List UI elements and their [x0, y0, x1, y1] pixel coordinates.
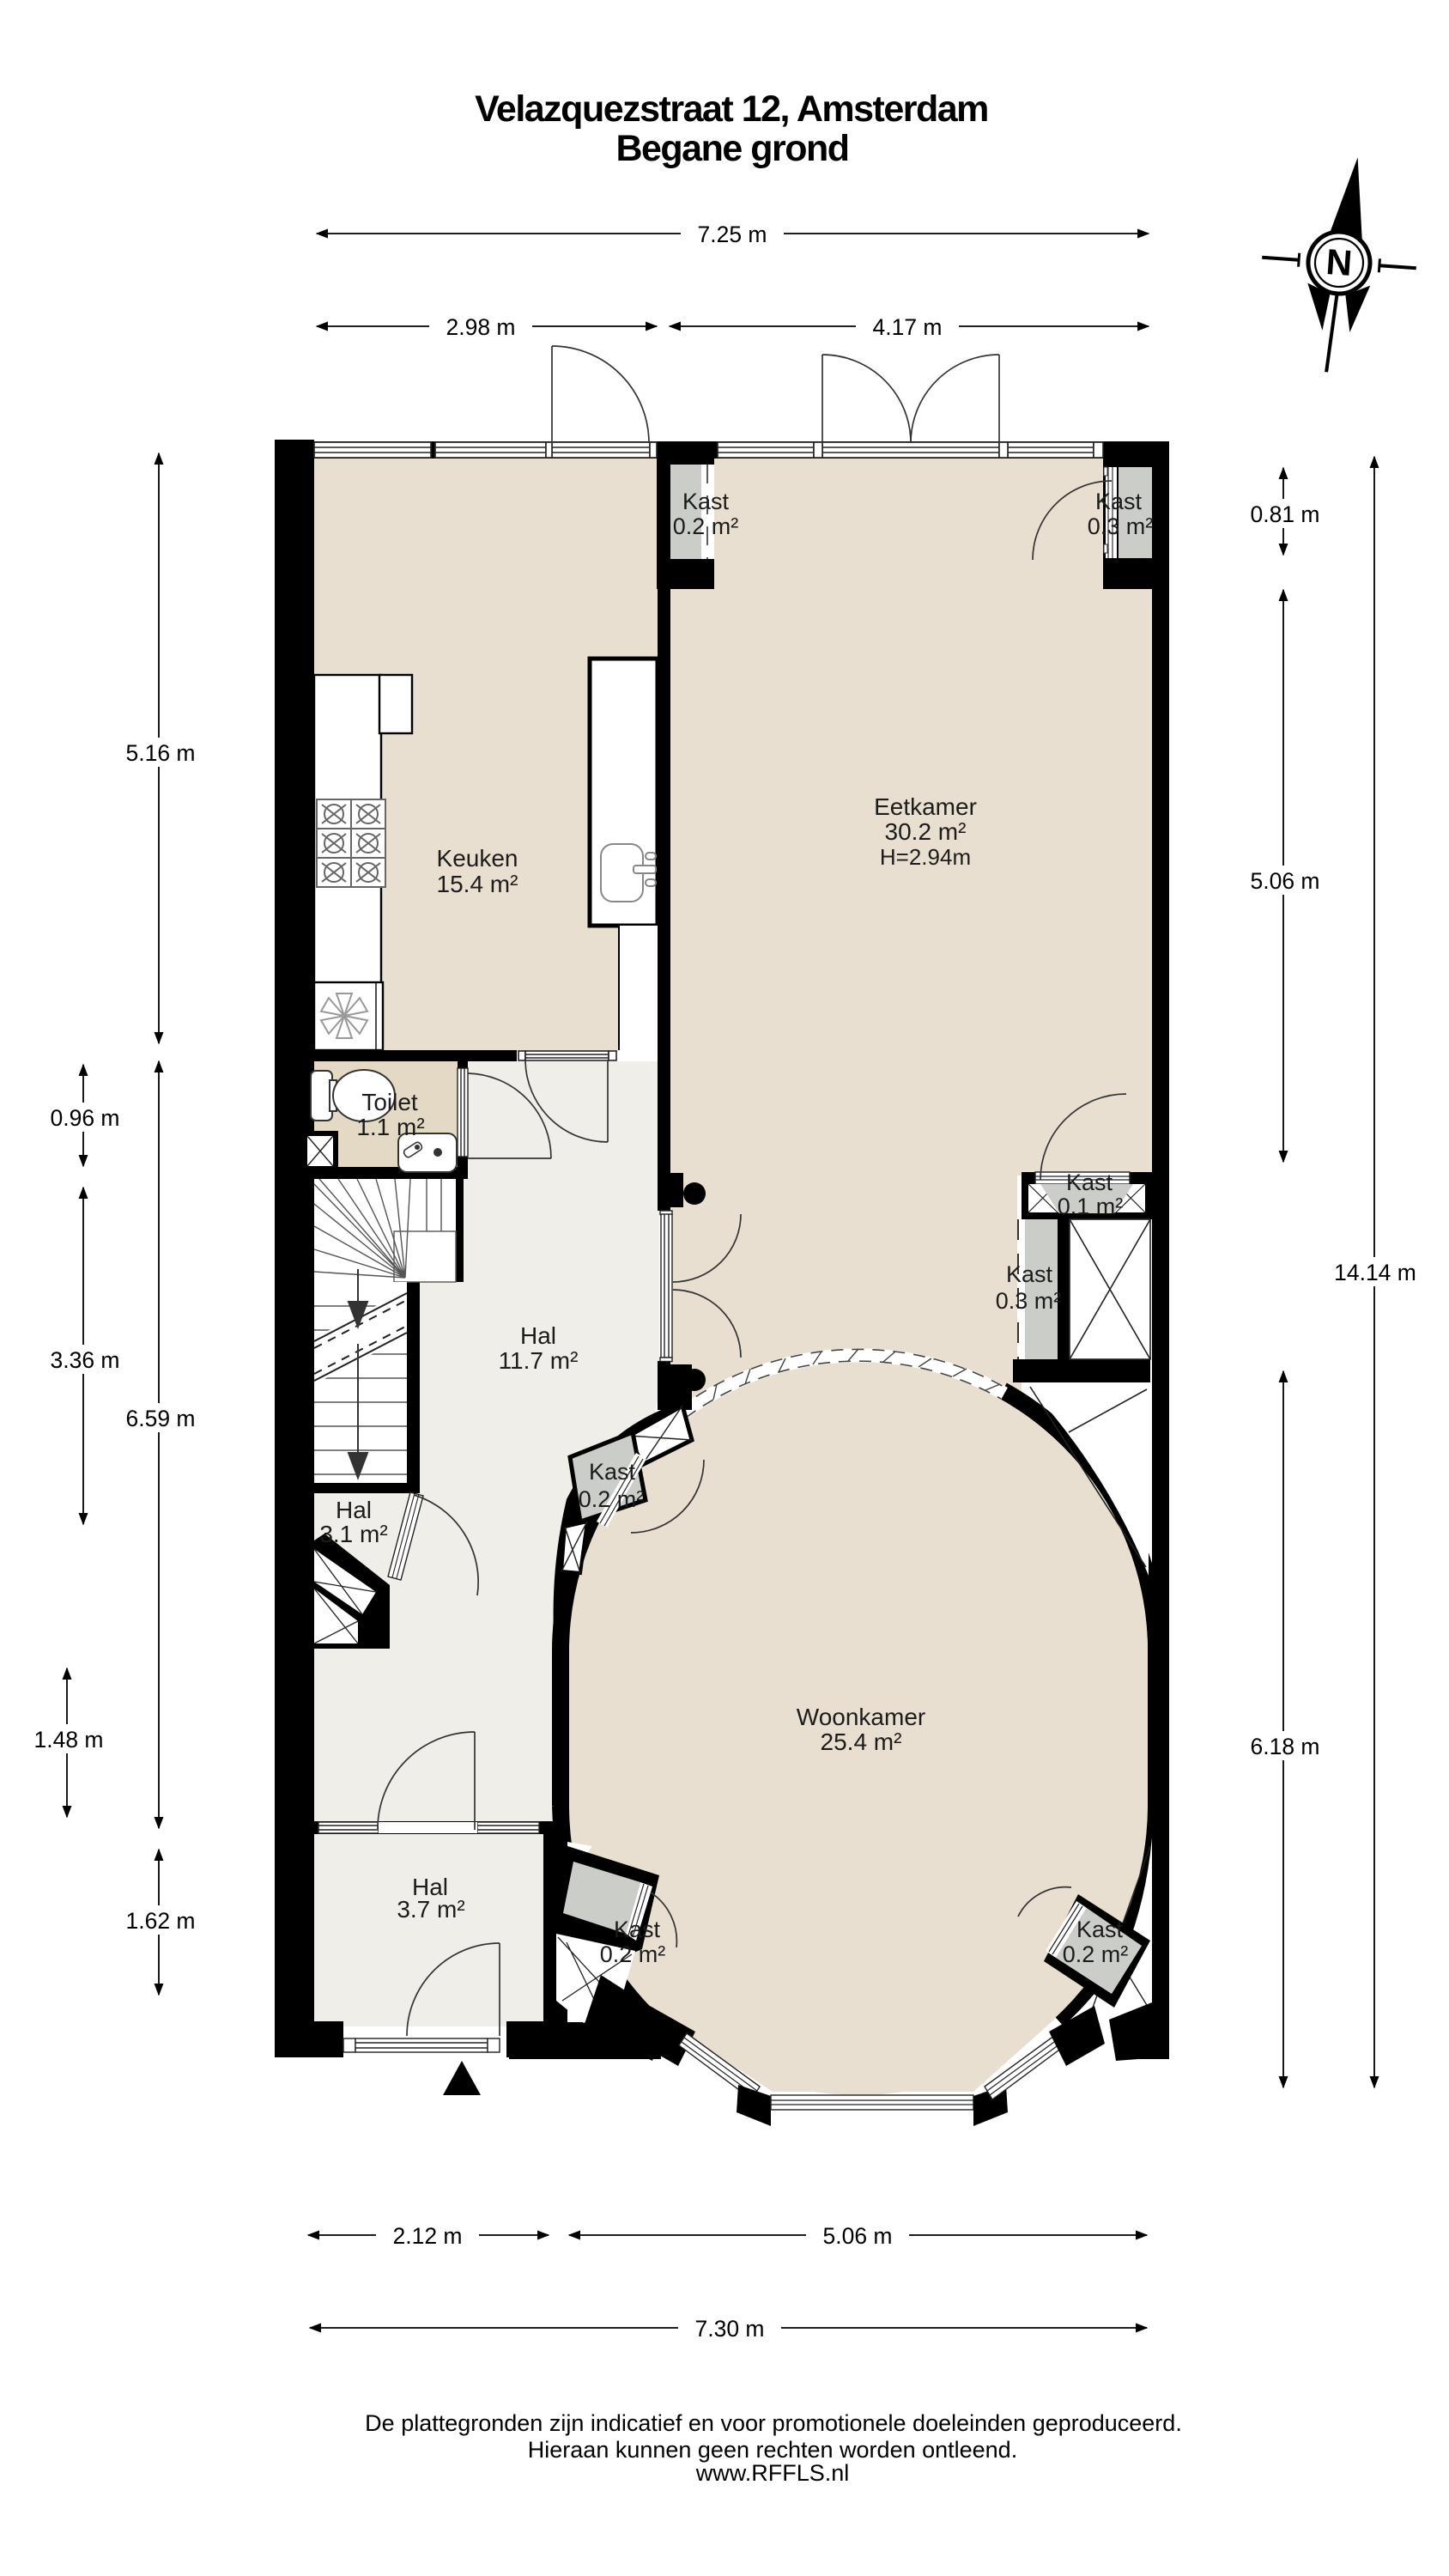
- svg-text:Kast: Kast: [1076, 1917, 1124, 1942]
- svg-text:7.30 m: 7.30 m: [694, 2316, 764, 2342]
- svg-text:11.7 m²: 11.7 m²: [499, 1347, 579, 1374]
- svg-text:1.48 m: 1.48 m: [33, 1727, 103, 1753]
- svg-text:3.36 m: 3.36 m: [50, 1347, 119, 1373]
- svg-text:5.06 m: 5.06 m: [822, 2223, 892, 2249]
- svg-text:14.14 m: 14.14 m: [1334, 1260, 1416, 1285]
- svg-text:3.7 m²: 3.7 m²: [397, 1896, 464, 1923]
- svg-text:30.2 m²: 30.2 m²: [885, 818, 967, 845]
- svg-text:0.2 m²: 0.2 m²: [1063, 1941, 1129, 1967]
- svg-text:Kast: Kast: [614, 1917, 661, 1942]
- svg-text:Kast: Kast: [1006, 1261, 1053, 1287]
- svg-text:0.96 m: 0.96 m: [50, 1105, 119, 1131]
- svg-text:Velazquezstraat 12, Amsterdam: Velazquezstraat 12, Amsterdam: [475, 88, 988, 130]
- svg-text:Toilet: Toilet: [361, 1089, 418, 1115]
- svg-text:Hieraan kunnen geen rechten wo: Hieraan kunnen geen rechten worden ontle…: [528, 2437, 1017, 2463]
- svg-text:2.98 m: 2.98 m: [446, 314, 515, 340]
- svg-text:0.2 m²: 0.2 m²: [579, 1486, 645, 1512]
- svg-text:Kast: Kast: [1095, 489, 1143, 514]
- svg-text:0.3 m²: 0.3 m²: [996, 1288, 1062, 1314]
- svg-text:0.2 m²: 0.2 m²: [673, 513, 739, 539]
- svg-text:Kast: Kast: [682, 489, 730, 514]
- svg-text:7.25 m: 7.25 m: [697, 222, 767, 247]
- svg-text:Eetkamer: Eetkamer: [874, 793, 977, 820]
- svg-text:Woonkamer: Woonkamer: [797, 1704, 925, 1730]
- svg-text:4.17 m: 4.17 m: [872, 314, 942, 340]
- svg-text:6.18 m: 6.18 m: [1250, 1734, 1319, 1759]
- svg-text:Kast: Kast: [1066, 1170, 1113, 1195]
- svg-text:Kast: Kast: [589, 1459, 636, 1485]
- svg-text:www.RFFLS.nl: www.RFFLS.nl: [695, 2460, 850, 2486]
- svg-text:1.1 m²: 1.1 m²: [356, 1114, 424, 1140]
- svg-text:0.2 m²: 0.2 m²: [600, 1941, 666, 1967]
- svg-text:H=2.94m: H=2.94m: [880, 844, 971, 870]
- svg-text:Keuken: Keuken: [437, 845, 518, 872]
- svg-text:3.1 m²: 3.1 m²: [319, 1521, 387, 1547]
- svg-text:2.12 m: 2.12 m: [392, 2223, 462, 2249]
- svg-text:N: N: [1325, 241, 1354, 283]
- svg-text:15.4 m²: 15.4 m²: [437, 871, 518, 897]
- svg-text:Begane grond: Begane grond: [615, 128, 848, 169]
- svg-text:0.81 m: 0.81 m: [1250, 501, 1319, 527]
- svg-text:6.59 m: 6.59 m: [125, 1406, 195, 1431]
- svg-text:0.3 m²: 0.3 m²: [1088, 513, 1154, 539]
- svg-text:5.06 m: 5.06 m: [1250, 868, 1319, 894]
- svg-text:25.4 m²: 25.4 m²: [821, 1728, 902, 1755]
- svg-text:5.16 m: 5.16 m: [125, 740, 195, 766]
- svg-text:De plattegronden zijn indicati: De plattegronden zijn indicatief en voor…: [365, 2410, 1182, 2436]
- svg-text:1.62 m: 1.62 m: [125, 1908, 195, 1934]
- svg-text:0.1 m²: 0.1 m²: [1058, 1194, 1124, 1219]
- svg-text:Hal: Hal: [336, 1497, 372, 1523]
- svg-text:Hal: Hal: [520, 1322, 556, 1349]
